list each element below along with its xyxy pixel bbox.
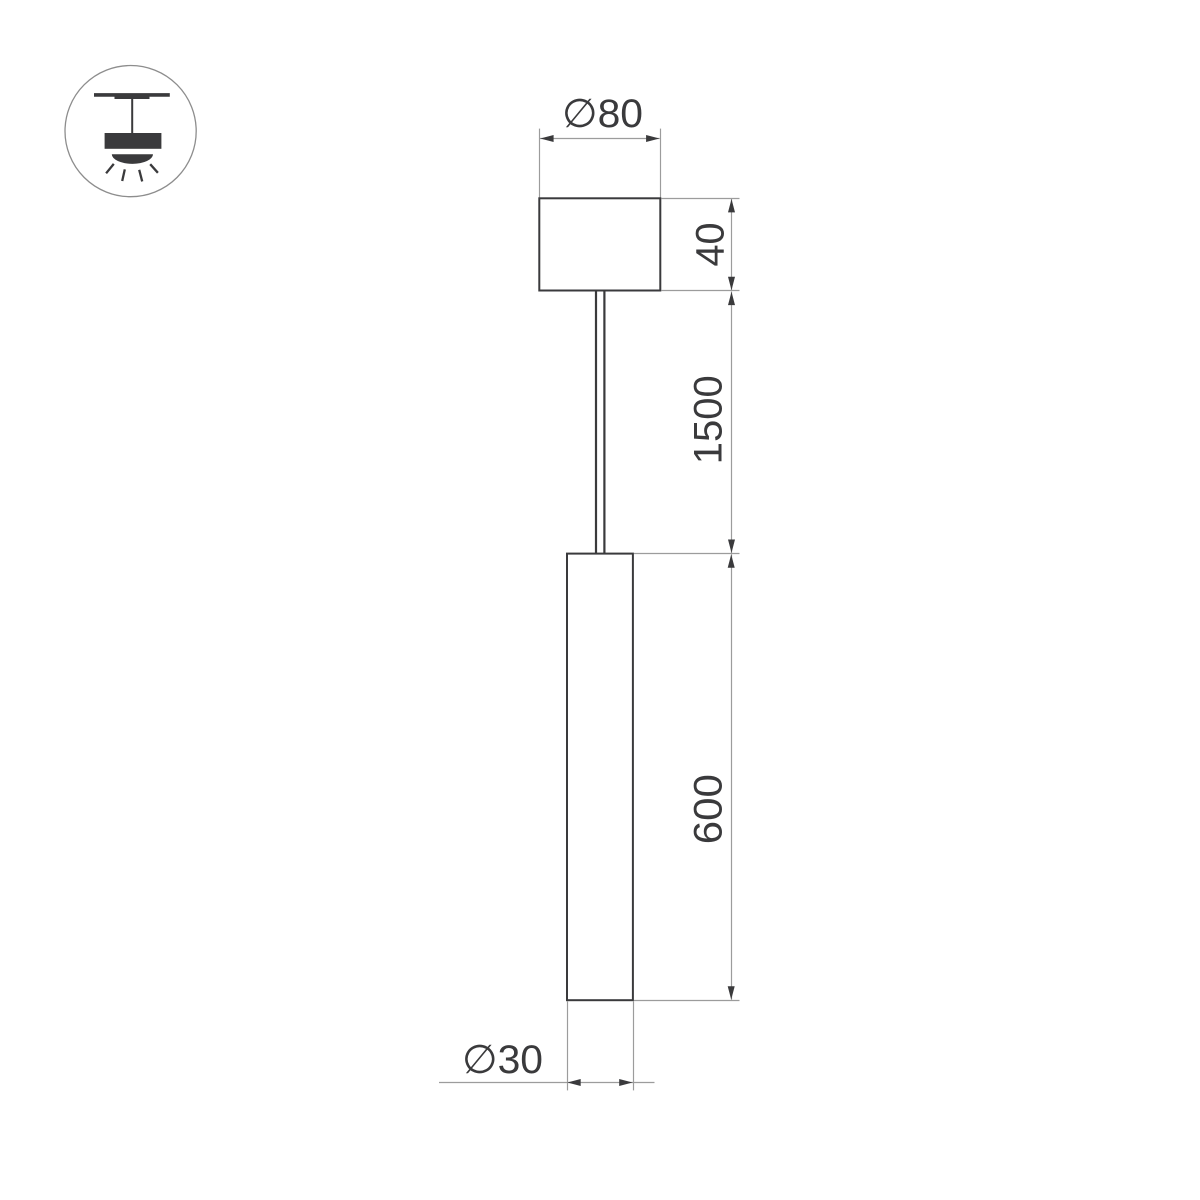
svg-text:∅30: ∅30 (462, 1038, 543, 1082)
svg-text:600: 600 (687, 774, 731, 844)
svg-text:1500: 1500 (687, 375, 731, 464)
svg-text:∅80: ∅80 (562, 92, 643, 136)
svg-text:40: 40 (689, 223, 733, 267)
